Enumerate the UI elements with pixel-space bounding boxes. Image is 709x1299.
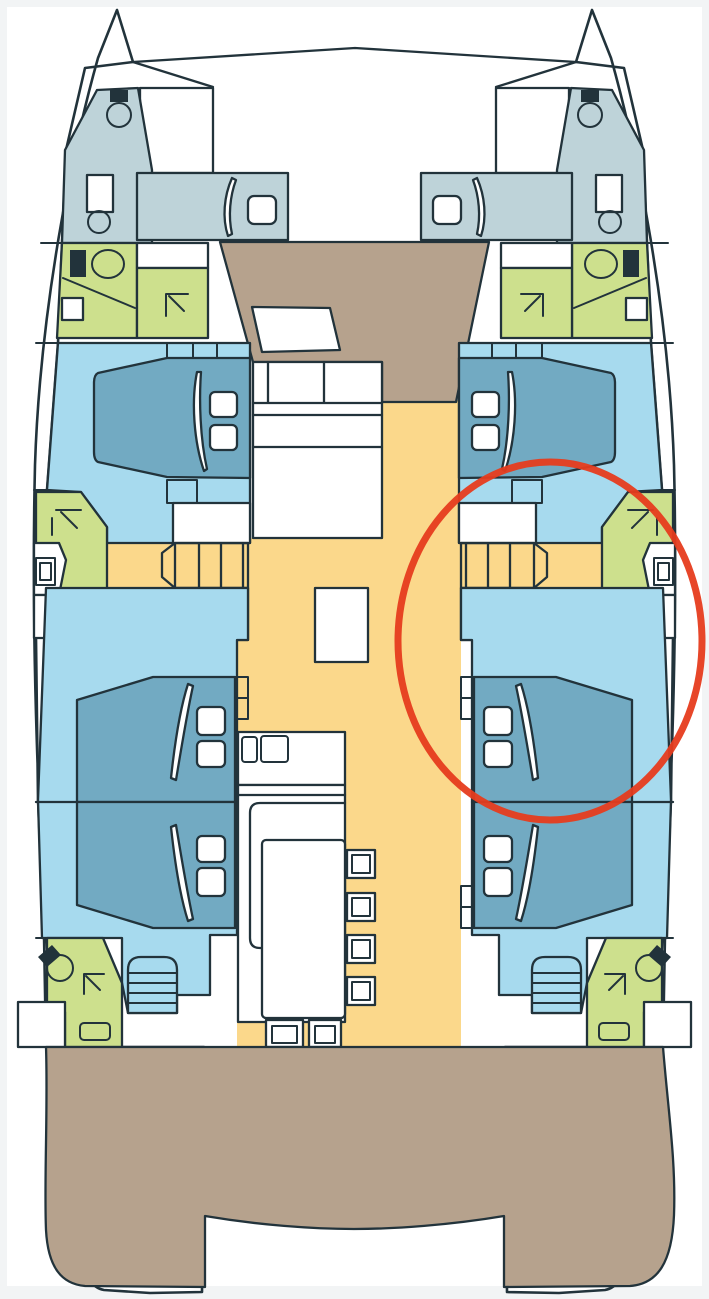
bed-pillow xyxy=(197,836,225,862)
page-background: Catamaran yacht deck plan — 4 guest doub… xyxy=(0,0,709,1299)
cabin-dresser xyxy=(173,503,250,543)
berth-pillow xyxy=(248,196,276,224)
catamaran-deck-plan: Catamaran yacht deck plan — 4 guest doub… xyxy=(0,0,709,1299)
galley-counter xyxy=(253,362,382,538)
dinette-table xyxy=(262,840,345,1018)
aft-deck xyxy=(45,1047,674,1287)
nav-sink-unit xyxy=(238,732,345,785)
bow-crossbeam-line xyxy=(133,48,576,62)
forward-shower-room xyxy=(137,268,208,338)
port-corridor-floor xyxy=(107,543,248,588)
bed-pillow xyxy=(210,425,237,450)
starboard-corridor-floor xyxy=(461,543,602,588)
forward-head-toilet-tank-icon xyxy=(70,250,86,277)
salon-floor-starboard-strip xyxy=(380,400,461,545)
forward-head-room xyxy=(57,243,137,338)
forepeak-toilet-tank-icon xyxy=(110,90,128,102)
forward-head-window xyxy=(62,298,83,320)
bed-pillow xyxy=(197,707,225,735)
salon-island xyxy=(315,588,368,662)
bed-pillow xyxy=(197,868,225,896)
stern-storage xyxy=(18,1002,65,1047)
bed-pillow xyxy=(197,741,225,767)
bed-pillow xyxy=(210,392,237,417)
trampoline-edge-line xyxy=(133,62,213,87)
forward-shower-lobby xyxy=(137,243,208,268)
galley-block xyxy=(253,362,382,538)
forepeak-basin-cabinet xyxy=(87,175,113,212)
aft-double-bed-forward xyxy=(77,677,235,802)
foredeck-hatch xyxy=(252,307,340,352)
companionway-steps xyxy=(128,957,177,1013)
aft-double-bed-aft xyxy=(77,802,235,928)
